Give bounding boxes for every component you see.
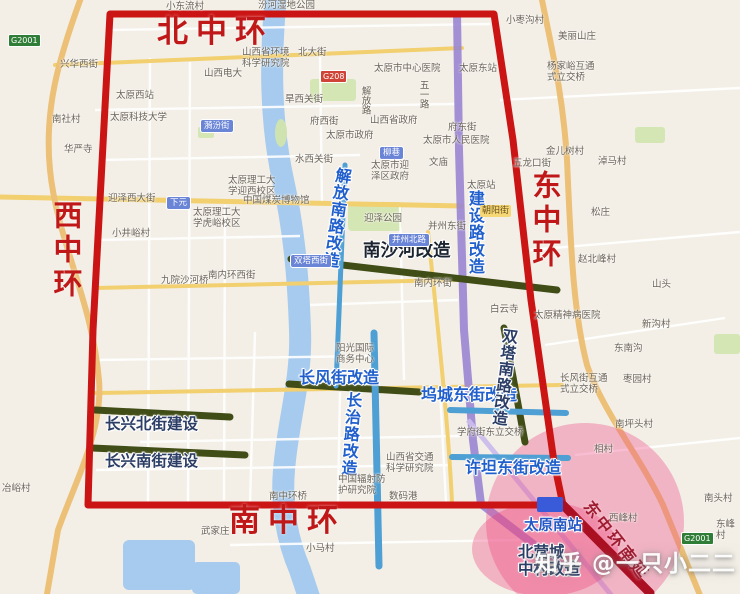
map-canvas[interactable]: 北中环南中环西中环东中环解放南路改造建设路改造南沙河改造长风街改造长治路改造坞城… bbox=[0, 0, 740, 594]
south-station-marker bbox=[537, 497, 563, 512]
map-base-layer bbox=[0, 0, 740, 594]
zhihu-watermark: 知乎 @一只小二二 bbox=[535, 552, 736, 578]
project-line-changzhi-rd bbox=[374, 333, 379, 566]
